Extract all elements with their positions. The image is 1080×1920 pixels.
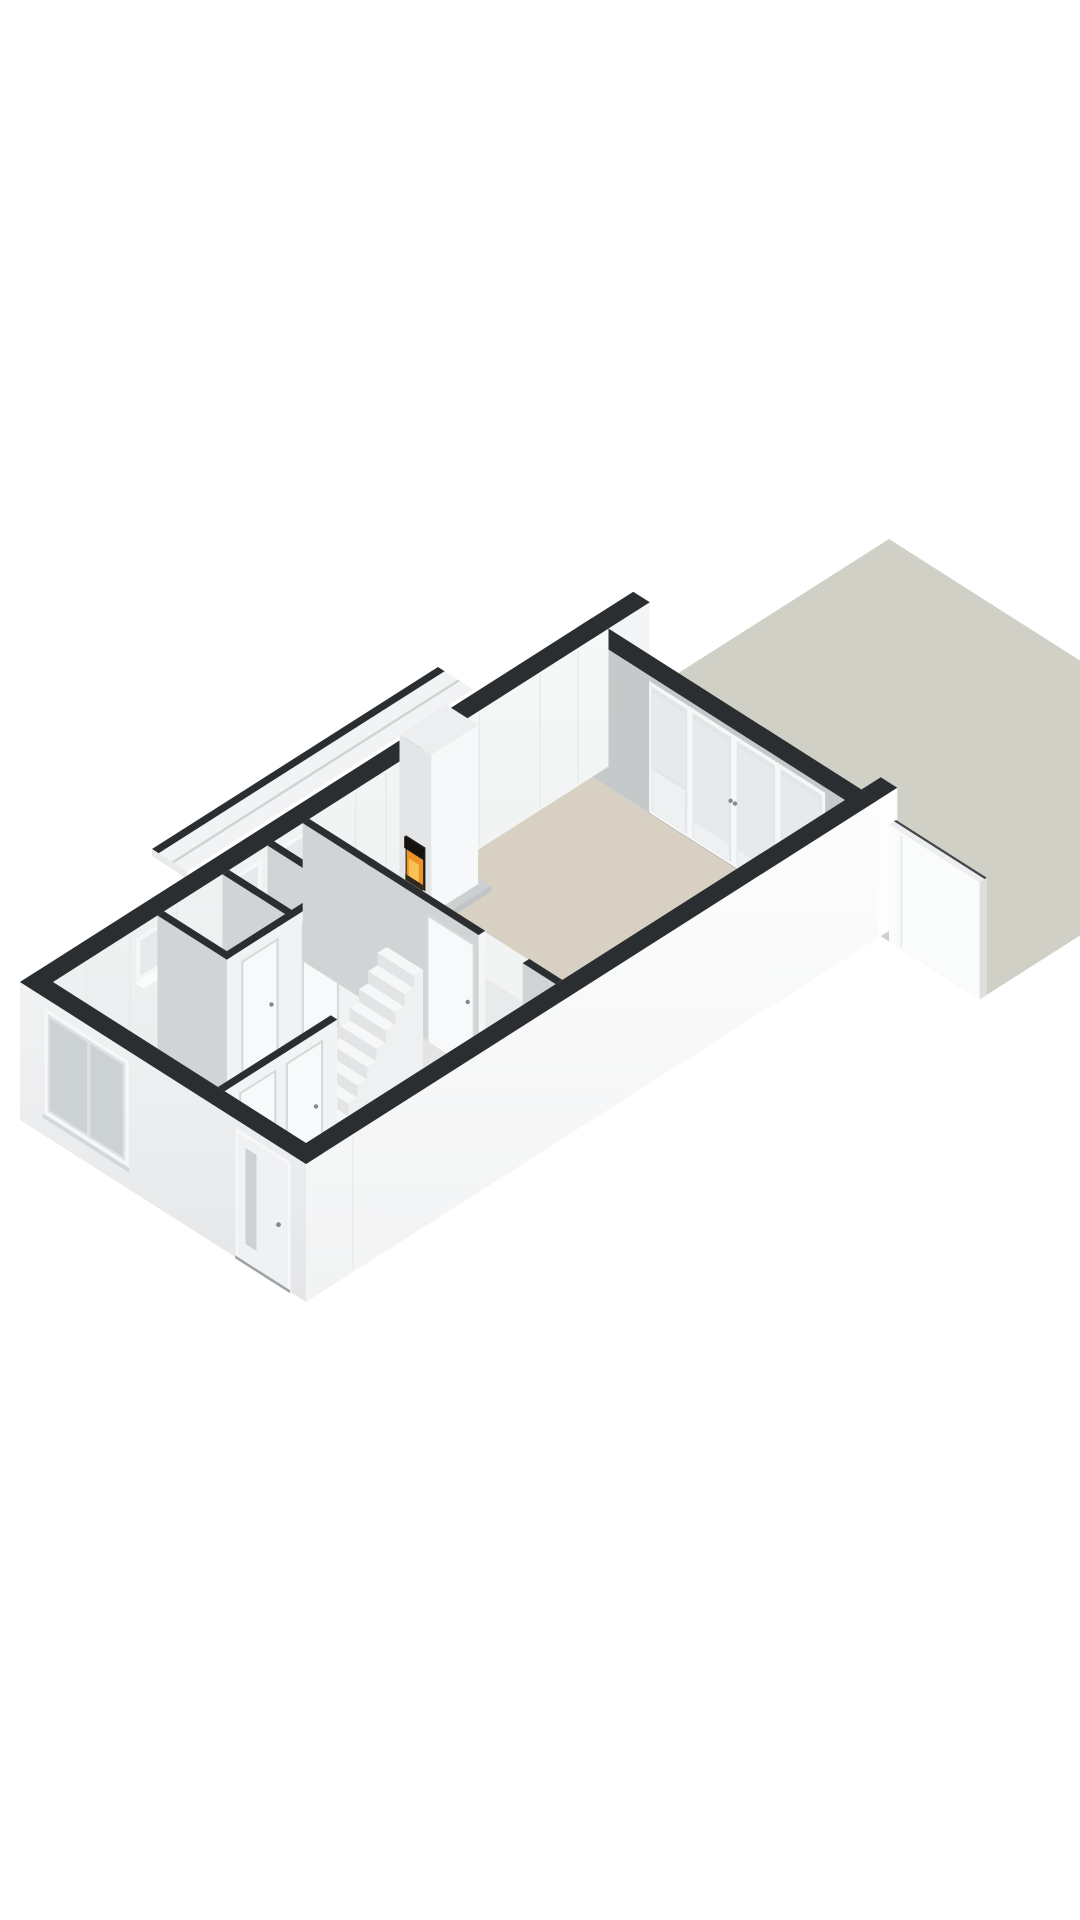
- right-wall-seam: [352, 1137, 353, 1270]
- floorplan-3d-render: [0, 0, 1080, 1920]
- rear-door-handle: [733, 801, 737, 805]
- front-door-glass: [246, 1148, 257, 1251]
- wall-panel-seam: [539, 675, 540, 808]
- fireplace-breast-side: [431, 725, 478, 914]
- floorplan-stage: [0, 0, 1080, 1920]
- rear-door-handle: [728, 799, 732, 803]
- door-handle: [269, 1002, 273, 1006]
- wall-panel-seam: [479, 713, 480, 846]
- fence-end: [980, 878, 987, 1000]
- door-handle: [314, 1104, 318, 1108]
- door-handle: [466, 1000, 470, 1004]
- fence-gate-seam: [901, 835, 903, 947]
- wall-panel-seam: [578, 650, 579, 783]
- front-door-handle: [276, 1222, 281, 1227]
